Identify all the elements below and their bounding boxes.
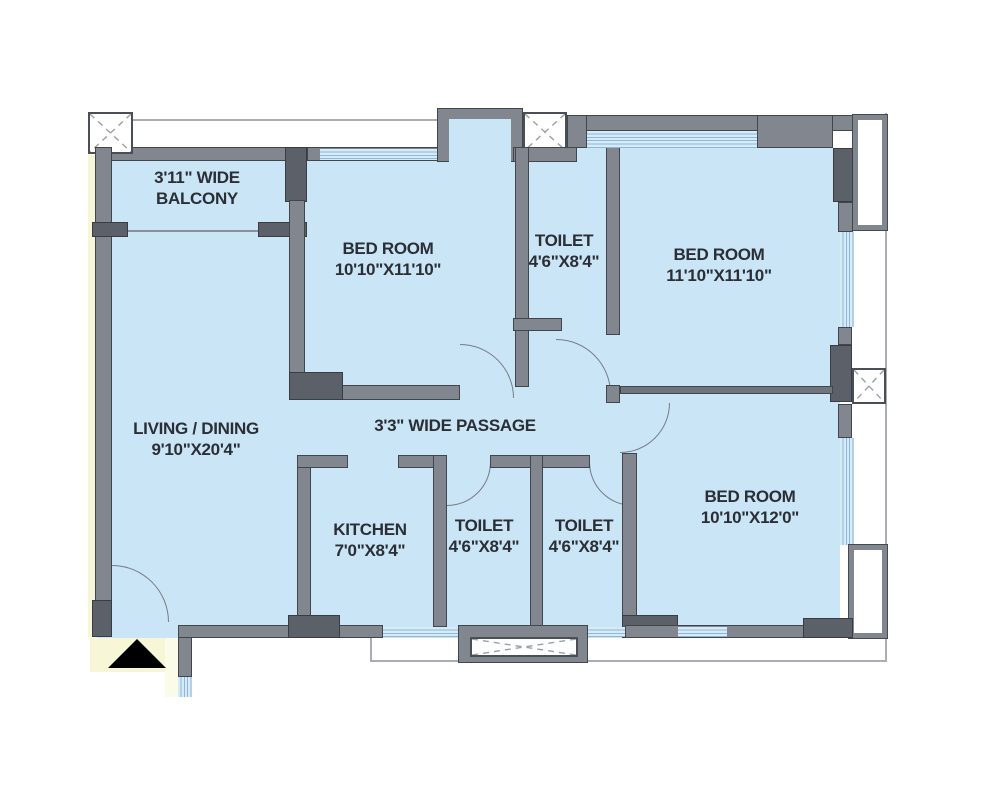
room-label-kitchen: KITCHEN7'0"X8'4" (300, 519, 440, 561)
entry-door-stub (178, 637, 192, 677)
floor-plan: 3'11" WIDEBALCONY BED ROOM10'10"X11'10" … (0, 0, 1000, 800)
balcony-bottom-wall-left (92, 222, 128, 237)
room-label-bedroom-3: BED ROOM10'10"X12'0" (670, 486, 830, 528)
bedroom2-top-right-block (757, 115, 833, 148)
room-label-bedroom-1: BED ROOM10'10"X11'10" (308, 238, 468, 280)
room-label-toilet-3: TOILET4'6"X8'4" (524, 515, 644, 557)
entry-stub-window (178, 677, 192, 697)
room-label-passage: 3'3" WIDE PASSAGE (345, 415, 565, 436)
bottom-window-2 (588, 627, 625, 637)
bedroom2-top-window (587, 131, 757, 148)
bottom-window-1 (383, 627, 458, 637)
outline-bottom (370, 660, 887, 662)
toilet1-bottom-stub (513, 318, 562, 331)
right-column-1 (833, 148, 853, 202)
kitchen-top-stub-left (297, 455, 348, 468)
outline-bottom-left (370, 638, 372, 661)
duct-shaft-bottom (470, 637, 578, 657)
bay-window-inner (449, 119, 511, 162)
bedroom2-top-wall (567, 115, 887, 131)
bottom-right-ledge (849, 545, 887, 638)
bottom-wall-living (178, 625, 383, 638)
right-stub-1 (838, 202, 853, 232)
bedroom2-bedroom3-wall (620, 386, 833, 394)
left-wall-bottom-column (92, 600, 112, 637)
entry-landing-2 (165, 637, 179, 697)
room-label-balcony: 3'11" WIDEBALCONY (117, 167, 277, 209)
balcony-threshold-line (128, 230, 258, 232)
room-label-living-dining: LIVING / DINING9'10"X20'4" (106, 418, 286, 460)
living-bedroom1-wall (289, 200, 305, 385)
bedroom2-top-left-column (567, 115, 587, 148)
room-label-toilet-1: TOILET4'6"X8'4" (504, 230, 624, 272)
passage-step-wall (606, 385, 620, 403)
right-column-2 (830, 345, 852, 402)
right-stub-2 (838, 327, 852, 345)
duct-shaft-top-middle (523, 112, 567, 152)
bedroom1-top-window (320, 149, 437, 160)
left-exterior-wall (95, 147, 112, 637)
bottom-column-kitchen (288, 615, 340, 638)
room-label-bedroom-2: BED ROOM11'10"X11'10" (639, 244, 799, 286)
bedroom2-right-window (840, 232, 854, 327)
top-right-ledge (853, 115, 887, 230)
bedroom1-bottom-column (289, 372, 343, 400)
balcony-corner-column (285, 147, 307, 202)
entry-arrow-icon (108, 639, 166, 668)
outline-top (133, 119, 437, 121)
bottom-column-right (803, 618, 853, 638)
right-stub-3 (838, 404, 852, 438)
bottom-window-3 (678, 627, 727, 637)
duct-shaft-right (852, 368, 886, 404)
bedroom3-right-window (840, 438, 854, 545)
